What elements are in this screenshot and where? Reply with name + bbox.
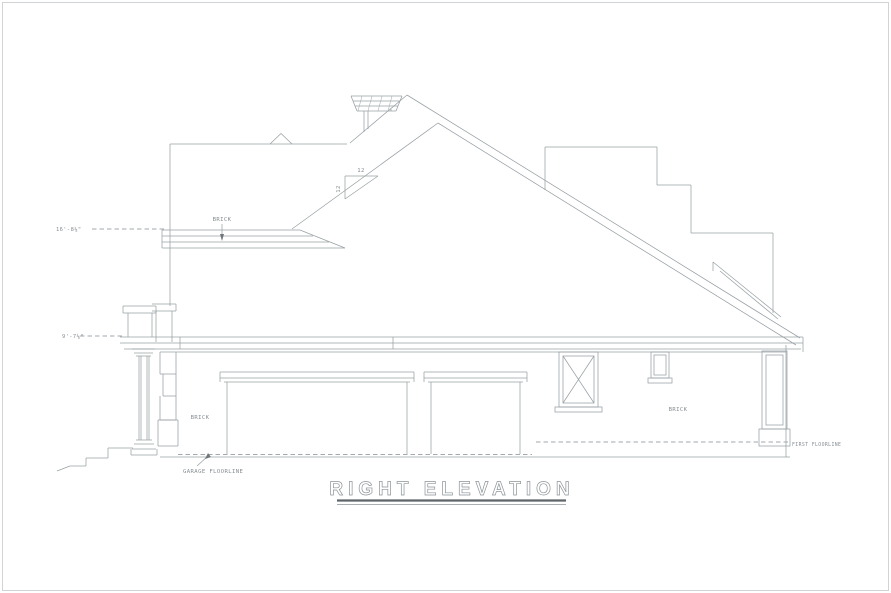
pitch-run-label: 12 (357, 168, 365, 174)
rear-roof-structures (545, 147, 781, 319)
dimension-upper-left: 16'-8⅛" (56, 226, 82, 233)
pitch-rise-label: 12 (336, 185, 342, 193)
porch-pier (123, 304, 176, 342)
porch-column (131, 349, 157, 455)
porch-steps (57, 448, 133, 471)
roof-outline (170, 95, 800, 345)
right-elevation-drawing: BRICK BRICK BRICK GARAGE FLOORLINE FIRST… (0, 0, 891, 593)
chimney-hatch (358, 96, 392, 111)
first-floorline-label: FIRST FLOORLINE (792, 442, 841, 448)
dimension-lower-left: 9'-7⅛" (62, 333, 84, 340)
brick-label-left: BRICK (191, 415, 210, 421)
brick-arrowhead (220, 234, 224, 241)
garage-door-left (220, 372, 414, 454)
drawing-sheet: BRICK BRICK BRICK GARAGE FLOORLINE FIRST… (0, 0, 891, 593)
eave-fascia (120, 337, 803, 352)
roof-pitch-marker (345, 176, 378, 199)
garage-floorline-arrowhead (205, 453, 211, 459)
chimney (351, 96, 402, 132)
brick-band (162, 230, 345, 248)
brick-label-right: BRICK (669, 407, 688, 413)
right-pilaster (759, 345, 790, 457)
garage-door-right (424, 372, 527, 454)
garage-floorline-label: GARAGE FLOORLINE (183, 469, 244, 475)
window-crossed (555, 352, 602, 412)
drawing-title: RIGHT ELEVATION (329, 479, 574, 500)
annotation-leaders (197, 224, 222, 466)
corner-quoins (158, 352, 178, 446)
dimension-leaders (80, 229, 166, 336)
brick-label-upper: BRICK (213, 217, 232, 223)
window-small (648, 352, 672, 383)
